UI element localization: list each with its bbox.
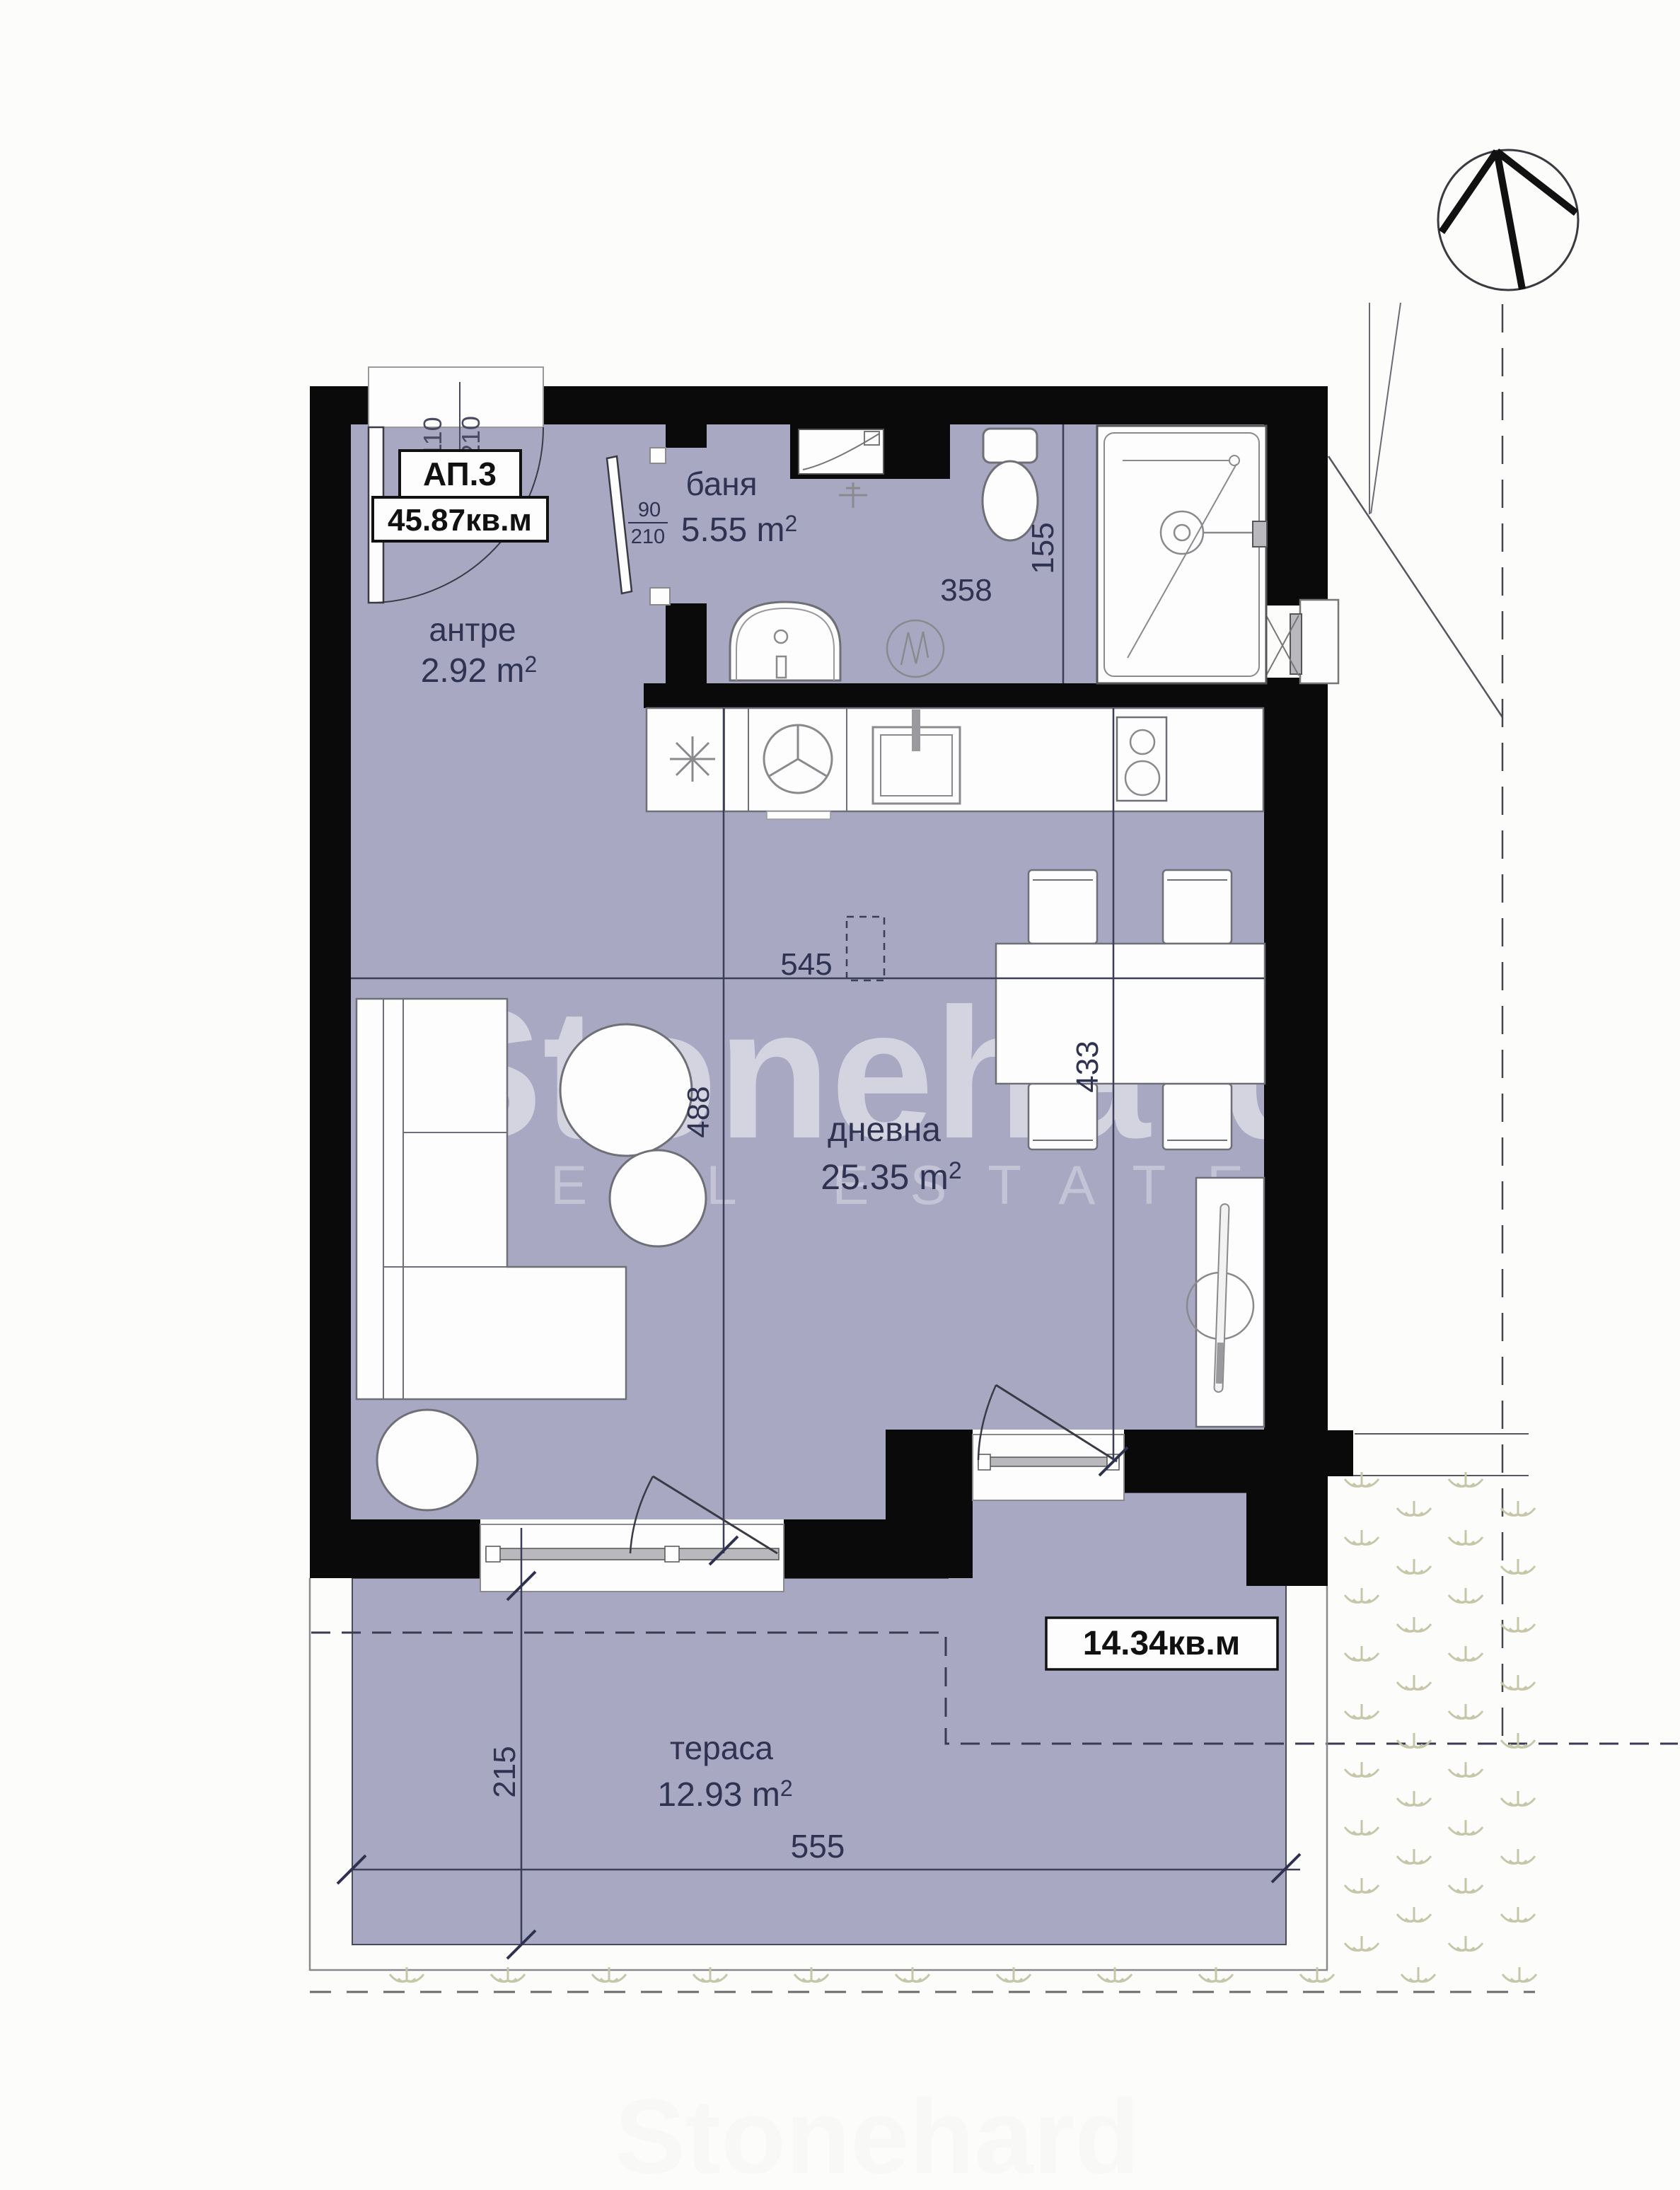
svg-text:25.35 m2: 25.35 m2 [821, 1157, 962, 1197]
svg-text:14.34кв.м: 14.34кв.м [1083, 1625, 1241, 1662]
svg-text:90: 90 [638, 499, 661, 521]
svg-text:АП.3: АП.3 [423, 456, 497, 492]
svg-text:155: 155 [1026, 522, 1060, 574]
svg-text:545: 545 [780, 947, 832, 982]
svg-text:антре: антре [429, 611, 516, 648]
svg-text:215: 215 [487, 1746, 522, 1797]
svg-text:5.55 m2: 5.55 m2 [681, 511, 798, 549]
svg-text:358: 358 [940, 573, 992, 608]
svg-text:45.87кв.м: 45.87кв.м [388, 503, 532, 538]
svg-text:баня: баня [685, 465, 757, 502]
svg-text:12.93 m2: 12.93 m2 [657, 1775, 792, 1814]
svg-text:дневна: дневна [828, 1111, 941, 1149]
svg-text:555: 555 [791, 1828, 845, 1865]
svg-text:тераса: тераса [670, 1730, 773, 1766]
svg-text:Stonehard: Stonehard [615, 2077, 1140, 2190]
svg-text:210: 210 [631, 526, 665, 548]
svg-text:433: 433 [1070, 1041, 1105, 1092]
svg-text:488: 488 [681, 1086, 716, 1137]
svg-text:2.92 m2: 2.92 m2 [421, 651, 538, 690]
